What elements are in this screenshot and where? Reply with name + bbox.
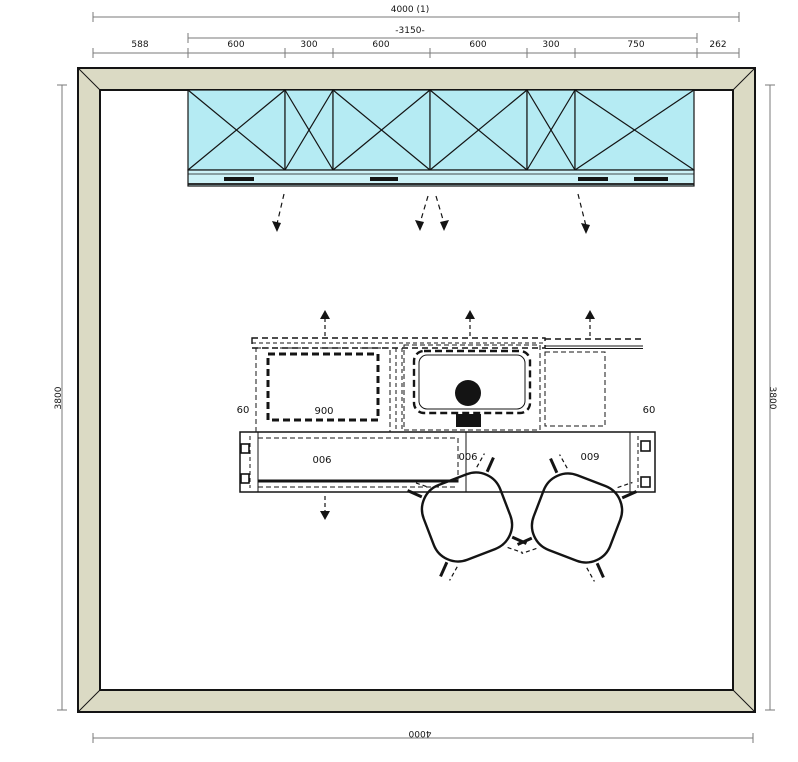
wall-cabinet-section-600a xyxy=(188,90,285,170)
dim-seg-750: 750 xyxy=(627,40,644,50)
dim-right-label: 3800 xyxy=(767,387,777,410)
cabinet-handle xyxy=(578,177,608,181)
dimension-left: 3800 xyxy=(54,85,67,710)
dim-seg-300b: 300 xyxy=(542,40,559,50)
dim-seg-600c: 600 xyxy=(469,40,486,50)
floorplan-drawing: 4000 (1) -3150- 588 600 300 600 600 300 … xyxy=(0,0,798,762)
dim-bottom-label: 4000 xyxy=(408,728,431,738)
cabinet-handle xyxy=(224,177,254,181)
island-offset-left-label: 60 xyxy=(237,405,250,416)
island-front-mid-label: 006 xyxy=(458,452,477,463)
wall-cabinet-section-300a xyxy=(285,90,333,170)
dim-seg-300a: 300 xyxy=(300,40,317,50)
dimension-right: 3800 xyxy=(765,85,777,710)
cabinet-handle xyxy=(634,177,668,181)
dim-left-label: 3800 xyxy=(54,386,64,409)
island-front-left-label: 006 xyxy=(312,455,331,466)
dimension-bottom: 4000 xyxy=(93,728,753,743)
wall-cabinet-section-750 xyxy=(575,90,694,170)
cabinet-handle xyxy=(370,177,398,181)
wall-cabinet-section-300b xyxy=(527,90,575,170)
dimension-top-segments: 588 600 300 600 600 300 750 262 xyxy=(93,40,739,58)
dim-top-total-label: 4000 (1) xyxy=(391,5,430,15)
dim-seg-588: 588 xyxy=(131,40,148,50)
cabinet-bottom-strip xyxy=(188,170,694,186)
faucet-base xyxy=(456,414,481,427)
floorplan-canvas: 4000 (1) -3150- 588 600 300 600 600 300 … xyxy=(0,0,798,762)
cooktop-width-label: 900 xyxy=(314,406,333,417)
dim-seg-600a: 600 xyxy=(227,40,244,50)
dimension-top-total: 4000 (1) xyxy=(93,5,739,22)
island-front-right-label: 009 xyxy=(580,452,599,463)
wall-cabinet-section-600c xyxy=(430,90,527,170)
wall-cabinet-section-600b xyxy=(333,90,430,170)
wall-cabinet-run xyxy=(188,90,694,186)
dimension-top-sub: -3150- xyxy=(188,26,697,43)
faucet-icon xyxy=(455,380,481,406)
dim-seg-262: 262 xyxy=(709,40,726,50)
dim-seg-600b: 600 xyxy=(372,40,389,50)
dim-top-sub-label: -3150- xyxy=(395,26,424,36)
island-offset-right-label: 60 xyxy=(643,405,656,416)
